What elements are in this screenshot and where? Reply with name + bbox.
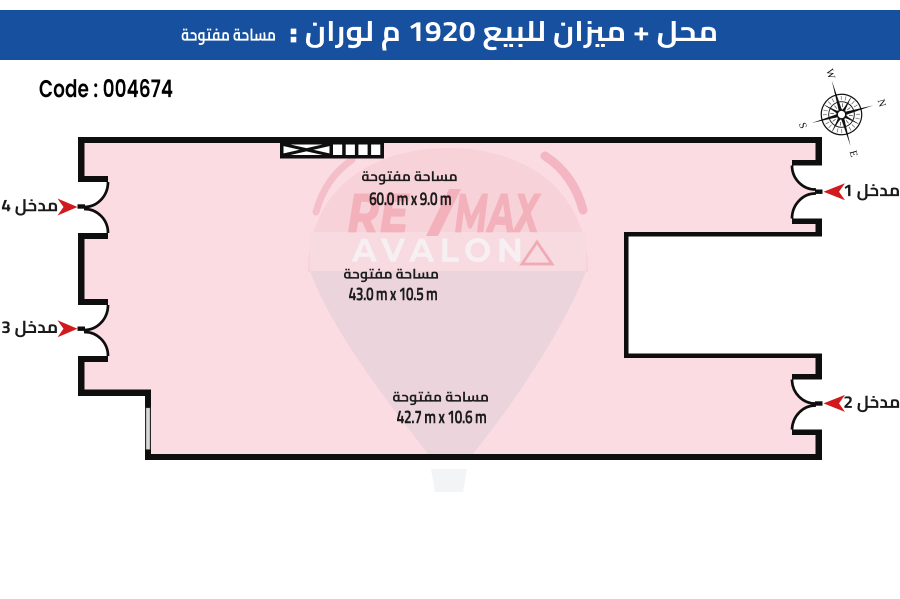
svg-text:S: S [796, 121, 808, 130]
svg-text:E: E [847, 149, 859, 158]
svg-text:N: N [875, 98, 888, 109]
svg-text:W: W [823, 68, 836, 81]
